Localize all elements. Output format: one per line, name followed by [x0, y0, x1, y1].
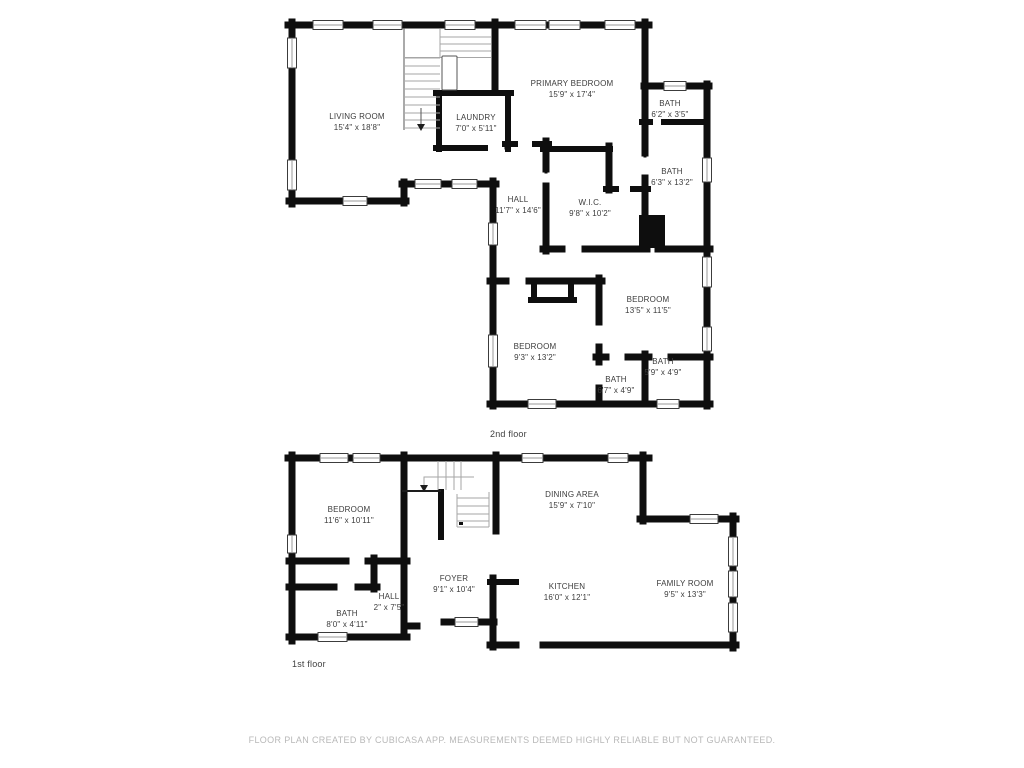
room-dims: 2" x 7'5"	[374, 602, 405, 613]
room-name: LAUNDRY	[455, 112, 496, 123]
room-label-kitchen: KITCHEN 16'0" x 12'1"	[544, 581, 590, 603]
room-dims: 9'5" x 13'3"	[656, 589, 713, 600]
room-label-primary-bedroom: PRIMARY BEDROOM 15'9" x 17'4"	[531, 78, 614, 100]
first-floor-caption: 1st floor	[292, 659, 326, 669]
room-name: BATH	[651, 166, 693, 177]
room-label-bedroom-west: BEDROOM 9'3" x 13'2"	[514, 341, 557, 363]
room-label-bedroom-1f: BEDROOM 11'6" x 10'11"	[324, 504, 374, 526]
room-label-family-room: FAMILY ROOM 9'5" x 13'3"	[656, 578, 713, 600]
room-name: PRIMARY BEDROOM	[531, 78, 614, 89]
room-name: DINING AREA	[545, 489, 599, 500]
room-dims: 8'0" x 4'11"	[326, 619, 367, 630]
room-dims: 9'8" x 10'2"	[569, 208, 611, 219]
room-name: LIVING ROOM	[329, 111, 385, 122]
room-name: BEDROOM	[514, 341, 557, 352]
second-floor-caption: 2nd floor	[490, 429, 527, 439]
room-label-foyer: FOYER 9'1" x 10'4"	[433, 573, 475, 595]
room-name: BATH	[651, 98, 688, 109]
room-dims: 9'3" x 13'2"	[514, 352, 557, 363]
room-label-bath-67: BATH 6'7" x 4'9"	[597, 374, 634, 396]
room-label-bedroom-east: BEDROOM 13'5" x 11'5"	[625, 294, 671, 316]
room-name: FAMILY ROOM	[656, 578, 713, 589]
room-name: FOYER	[433, 573, 475, 584]
room-dims: 7'0" x 5'11"	[455, 123, 496, 134]
room-dims: 6'7" x 4'9"	[597, 385, 634, 396]
room-label-bath-small: BATH 6'2" x 3'5"	[651, 98, 688, 120]
room-name: BATH	[326, 608, 367, 619]
room-dims: 15'9" x 7'10"	[545, 500, 599, 511]
floor-plan-drawing	[0, 0, 1024, 768]
room-name: BEDROOM	[324, 504, 374, 515]
room-name: KITCHEN	[544, 581, 590, 592]
room-dims: 11'7" x 14'6"	[495, 205, 541, 216]
room-label-bath-59: BATH 5'9" x 4'9"	[644, 356, 681, 378]
first-floor-stairs	[420, 461, 489, 527]
room-dims: 5'9" x 4'9"	[644, 367, 681, 378]
room-name: BEDROOM	[625, 294, 671, 305]
room-name: BATH	[597, 374, 634, 385]
room-label-hall-1f: HALL 2" x 7'5"	[374, 591, 405, 613]
room-label-laundry: LAUNDRY 7'0" x 5'11"	[455, 112, 496, 134]
room-label-living-room: LIVING ROOM 15'4" x 18'8"	[329, 111, 385, 133]
floor-plan-canvas: LIVING ROOM 15'4" x 18'8" LAUNDRY 7'0" x…	[0, 0, 1024, 768]
room-label-wic: W.I.C. 9'8" x 10'2"	[569, 197, 611, 219]
room-label-bath-1f: BATH 8'0" x 4'11"	[326, 608, 367, 630]
room-dims: 13'5" x 11'5"	[625, 305, 671, 316]
room-name: HALL	[495, 194, 541, 205]
room-label-hall-2f: HALL 11'7" x 14'6"	[495, 194, 541, 216]
room-label-bath-long: BATH 6'3" x 13'2"	[651, 166, 693, 188]
room-dims: 11'6" x 10'11"	[324, 515, 374, 526]
chimney-block	[639, 215, 665, 248]
disclaimer-text: FLOOR PLAN CREATED BY CUBICASA APP. MEAS…	[0, 735, 1024, 745]
second-floor-door-jambs	[483, 121, 672, 388]
room-dims: 16'0" x 12'1"	[544, 592, 590, 603]
room-dims: 15'9" x 17'4"	[531, 89, 614, 100]
room-dims: 6'3" x 13'2"	[651, 177, 693, 188]
room-name: BATH	[644, 356, 681, 367]
room-dims: 15'4" x 18'8"	[329, 122, 385, 133]
room-dims: 6'2" x 3'5"	[651, 109, 688, 120]
room-name: HALL	[374, 591, 405, 602]
room-name: W.I.C.	[569, 197, 611, 208]
room-label-dining-area: DINING AREA 15'9" x 7'10"	[545, 489, 599, 511]
room-dims: 9'1" x 10'4"	[433, 584, 475, 595]
